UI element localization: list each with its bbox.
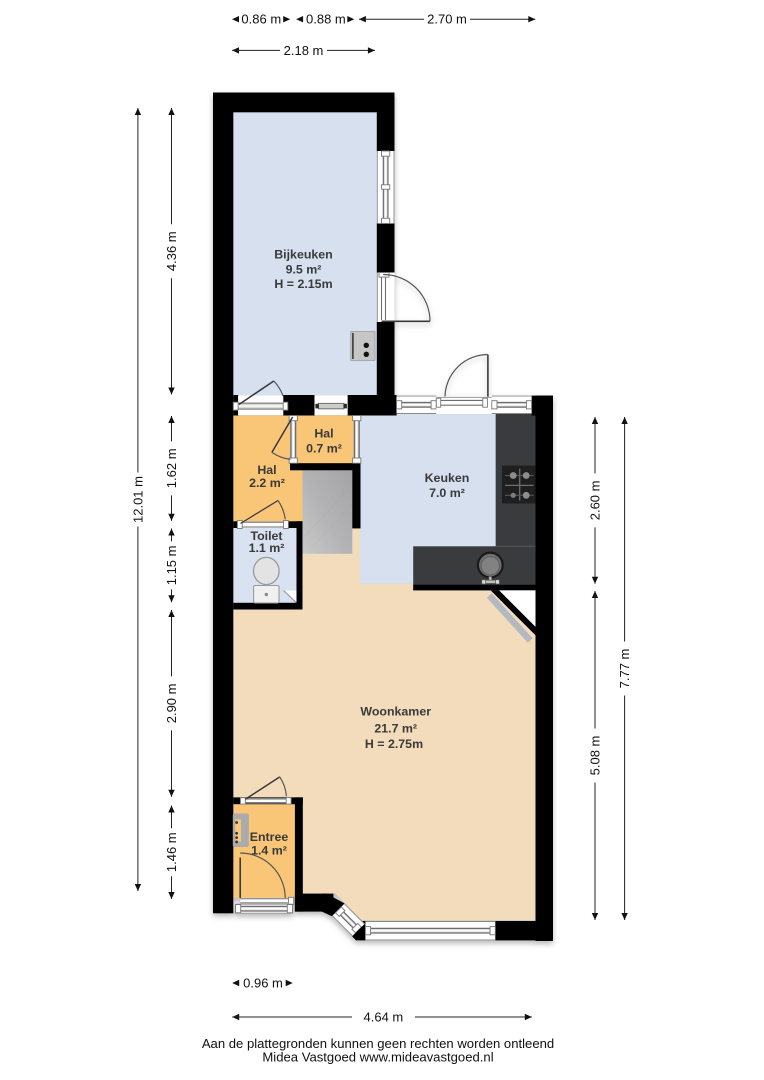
svg-text:7.0 m²: 7.0 m²: [429, 486, 465, 500]
svg-text:H = 2.75m: H = 2.75m: [365, 737, 423, 751]
svg-text:H = 2.15m: H = 2.15m: [274, 277, 332, 291]
svg-text:Bijkeuken: Bijkeuken: [274, 247, 333, 261]
svg-text:21.7 m²: 21.7 m²: [374, 722, 417, 736]
svg-text:Keuken: Keuken: [425, 471, 470, 485]
svg-text:2.2 m²: 2.2 m²: [249, 476, 285, 490]
svg-text:0.7 m²: 0.7 m²: [306, 441, 342, 455]
svg-text:5.08 m: 5.08 m: [588, 736, 603, 776]
svg-text:1.62 m: 1.62 m: [164, 448, 179, 488]
svg-text:Hal: Hal: [257, 463, 276, 477]
svg-text:2.70 m: 2.70 m: [427, 12, 467, 27]
svg-text:Woonkamer: Woonkamer: [360, 705, 431, 719]
svg-text:0.96 m: 0.96 m: [243, 976, 283, 991]
svg-text:7.77 m: 7.77 m: [617, 649, 632, 689]
svg-text:2.60 m: 2.60 m: [588, 481, 603, 521]
svg-text:2.90 m: 2.90 m: [164, 684, 179, 724]
svg-text:0.86 m: 0.86 m: [241, 12, 281, 27]
svg-text:4.64 m: 4.64 m: [364, 1010, 404, 1025]
svg-text:0.88 m: 0.88 m: [306, 12, 346, 27]
svg-text:1.1 m²: 1.1 m²: [249, 541, 285, 555]
svg-text:1.46 m: 1.46 m: [164, 832, 179, 872]
svg-text:12.01 m: 12.01 m: [130, 476, 145, 523]
svg-text:Entree: Entree: [250, 830, 289, 844]
svg-text:9.5 m²: 9.5 m²: [286, 263, 322, 277]
svg-text:Midea Vastgoed www.mideavastgo: Midea Vastgoed www.mideavastgoed.nl: [262, 1050, 493, 1065]
svg-text:1.15 m: 1.15 m: [164, 546, 179, 586]
svg-text:Hal: Hal: [314, 427, 333, 441]
svg-text:1.4 m²: 1.4 m²: [251, 844, 287, 858]
svg-text:4.36 m: 4.36 m: [164, 231, 179, 271]
svg-text:2.18 m: 2.18 m: [284, 43, 324, 58]
